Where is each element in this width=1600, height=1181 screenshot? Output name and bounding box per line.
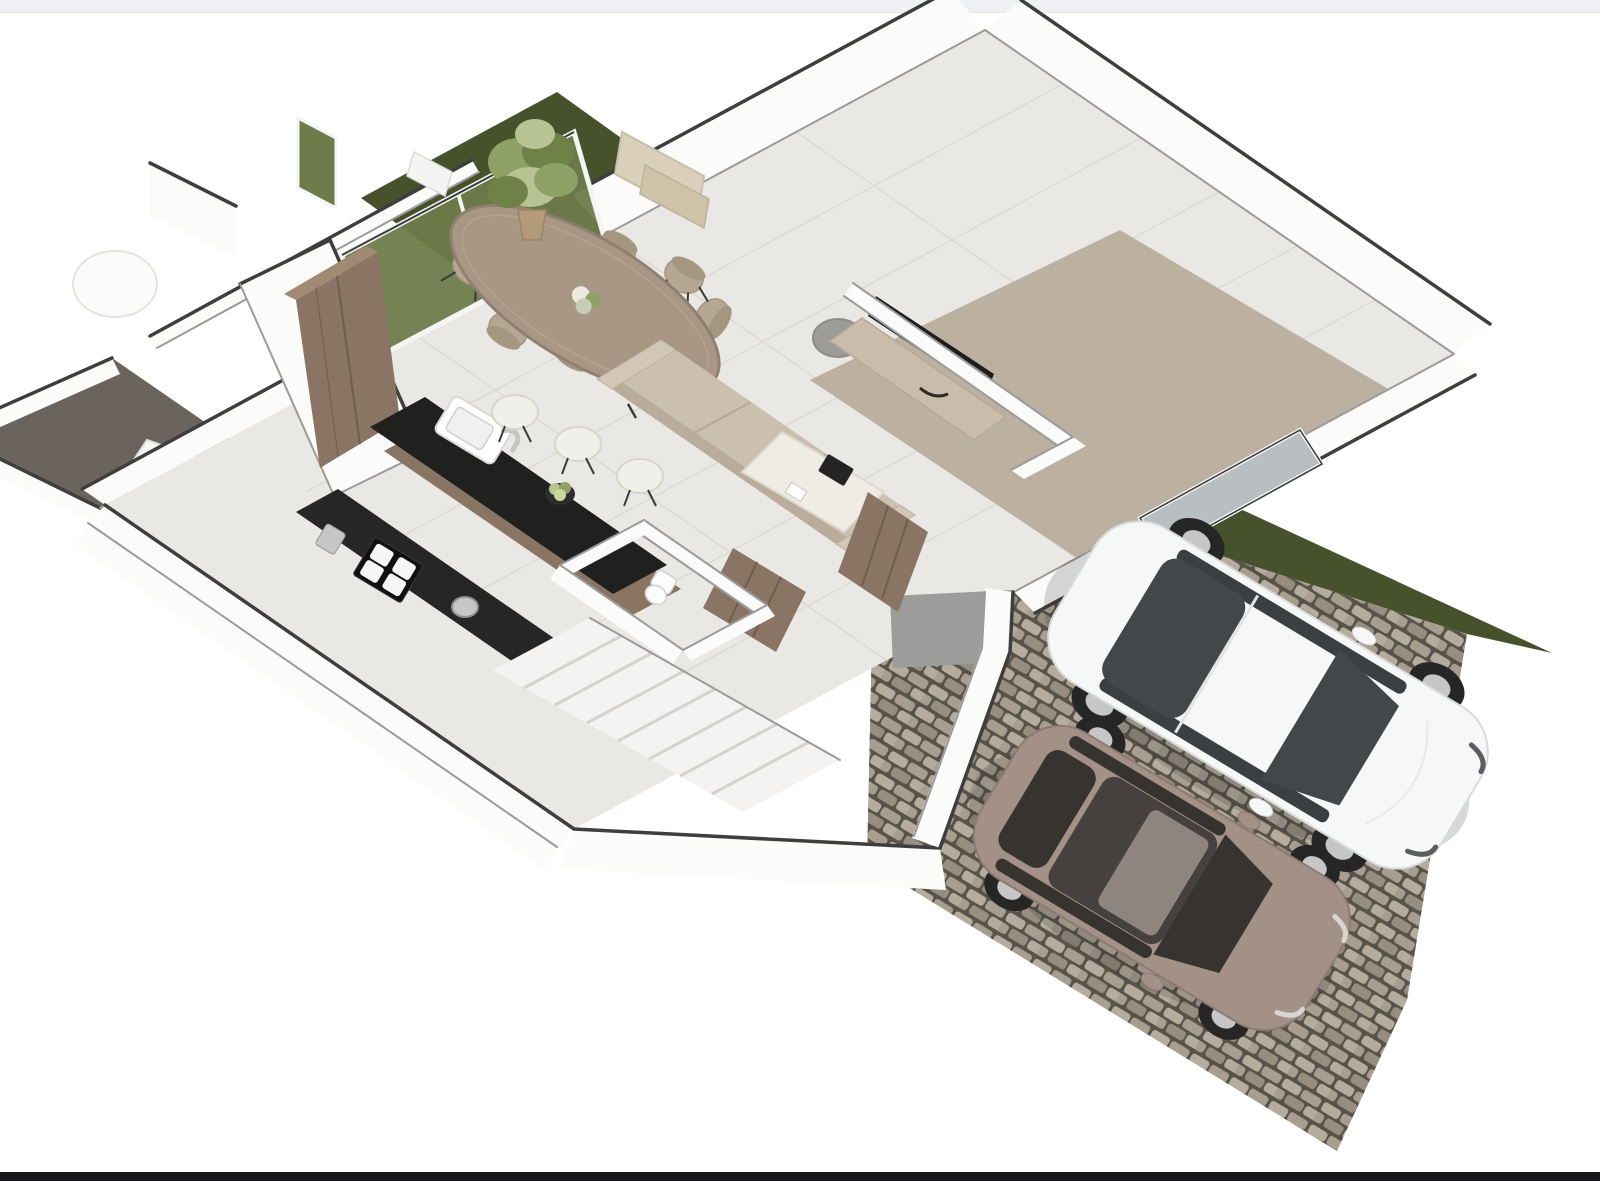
plant-pot: [518, 210, 546, 240]
bottom-bar: [0, 1172, 1600, 1181]
fence-return-wall: [150, 163, 236, 258]
floor-plan-svg: [0, 0, 1600, 1181]
floor-plan-render: [0, 0, 1600, 1181]
fixed-sidelight: [298, 118, 336, 208]
round-planter: [73, 251, 157, 317]
cooking-pot: [452, 597, 478, 617]
